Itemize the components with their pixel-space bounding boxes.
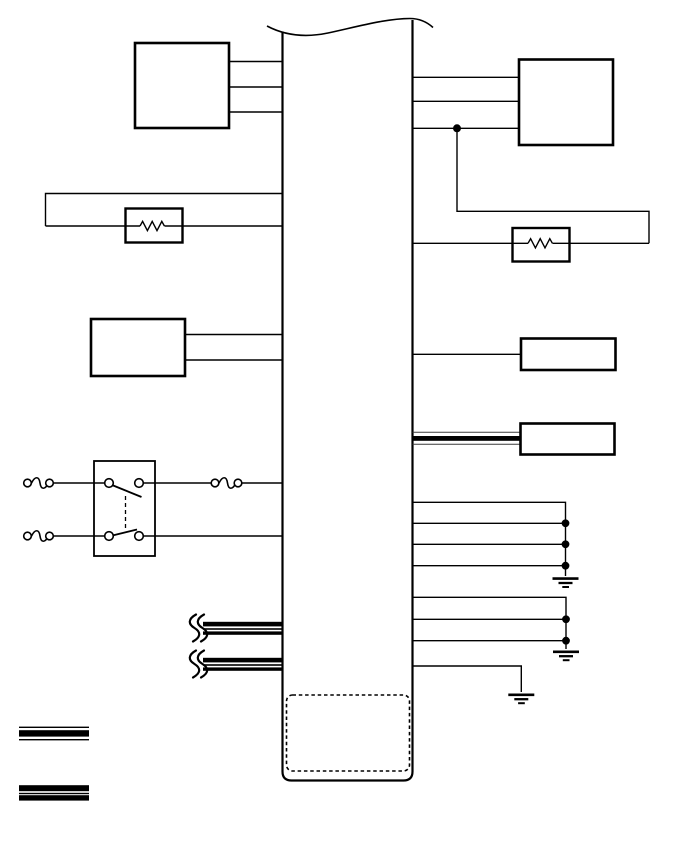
wiring-diagram-page: [0, 0, 688, 852]
bus-core: [203, 628, 283, 630]
connector-pin-icon: [46, 532, 54, 540]
single-ground-wire: [413, 666, 535, 703]
junction-dot: [562, 562, 570, 570]
dual-contact-switch: [24, 461, 283, 556]
switch-blade-closed-icon: [113, 530, 138, 536]
connector-pin-icon: [24, 479, 32, 487]
shielded-bus-upper: [190, 615, 283, 642]
switch-terminal-icon: [135, 479, 144, 488]
ground-icon: [553, 652, 579, 660]
mid-right-component: [413, 339, 616, 371]
bus-bar: [203, 667, 283, 670]
shield-core-bar: [413, 436, 522, 441]
right-resistor-loop: [413, 128, 650, 261]
switch-terminal-icon: [135, 532, 144, 541]
legend-thin-line: [19, 739, 89, 740]
mid-right-component-box: [521, 339, 616, 371]
legend-thin-line: [19, 727, 89, 728]
bus-bar: [203, 622, 283, 627]
shielded-component-box: [521, 424, 615, 455]
ground-group-b: [413, 597, 580, 660]
junction-dot: [562, 615, 570, 623]
resistor-box: [513, 228, 570, 262]
top-right-component-box: [519, 60, 613, 146]
ground-icon: [508, 695, 534, 703]
wiring-diagram-svg: [0, 0, 688, 852]
legend-thick-line: [19, 730, 89, 736]
top-right-component: [413, 60, 614, 146]
legend-thin-line: [19, 793, 89, 794]
junction-dot: [562, 637, 570, 645]
ground-group-a: [413, 502, 579, 587]
bus-core: [203, 664, 283, 666]
mid-left-component: [91, 319, 283, 376]
wire-corner: [413, 502, 566, 576]
shielded-component: [413, 424, 615, 455]
junction-dot: [562, 540, 570, 548]
connector-pin-icon: [234, 479, 242, 487]
top-left-component: [135, 43, 283, 128]
shielded-bus-lower: [190, 651, 283, 678]
connector-pin-icon: [46, 479, 54, 487]
bus-bar: [203, 658, 283, 663]
legend-cable-sample-b: [19, 785, 89, 800]
mid-left-component-box: [91, 319, 185, 376]
junction-dot: [562, 519, 570, 527]
switch-terminal-icon: [105, 532, 114, 541]
switch-body-box: [94, 461, 155, 556]
left-resistor-loop: [46, 194, 283, 243]
top-left-component-box: [135, 43, 229, 128]
ground-icon: [553, 579, 579, 587]
connector-pin-icon: [24, 532, 32, 540]
bus-bar: [203, 631, 283, 634]
legend-thick-line: [19, 785, 89, 791]
module-outline: [283, 20, 413, 781]
legend-cable-sample-a: [19, 727, 89, 741]
wire-corner: [413, 666, 522, 692]
dashed-sub-connector: [287, 695, 410, 771]
connector-pin-icon: [211, 479, 219, 487]
central-control-module: [267, 19, 433, 781]
torn-edge-path: [267, 19, 433, 36]
legend-thick-line: [19, 795, 89, 800]
